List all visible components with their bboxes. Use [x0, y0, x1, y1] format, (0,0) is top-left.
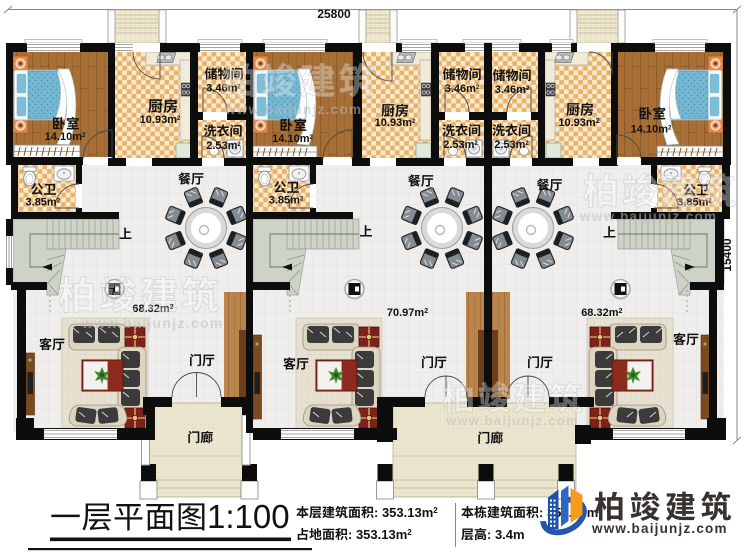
svg-text:70.97m2: 70.97m2	[387, 307, 428, 319]
svg-text:3.85m2: 3.85m2	[26, 197, 61, 209]
svg-text:www.baijunjz.com: www.baijunjz.com	[81, 315, 224, 331]
svg-text:3.46m2: 3.46m2	[445, 83, 480, 95]
svg-text:3.85m2: 3.85m2	[269, 195, 304, 207]
svg-text:1:100: 1:100	[207, 498, 290, 535]
svg-text:2.53m2: 2.53m2	[443, 139, 478, 151]
svg-text:14.10m2: 14.10m2	[631, 124, 672, 136]
svg-text:10.93m2: 10.93m2	[375, 117, 416, 129]
svg-text:3.46m2: 3.46m2	[495, 84, 530, 96]
svg-text:www.baijunjz.com: www.baijunjz.com	[591, 521, 728, 536]
svg-text:68.32m2: 68.32m2	[581, 307, 622, 319]
svg-text:25800: 25800	[317, 7, 351, 21]
svg-text:14.10m2: 14.10m2	[272, 133, 313, 145]
svg-text:www.baijunjz.com: www.baijunjz.com	[224, 102, 362, 117]
svg-text:www.baijunjz.com: www.baijunjz.com	[579, 209, 717, 224]
svg-text:www.baijunjz.com: www.baijunjz.com	[445, 413, 579, 428]
svg-text:: 353.13m2: : 353.13m2	[348, 527, 412, 542]
svg-text:14.10m2: 14.10m2	[45, 131, 86, 143]
svg-text:10.93m2: 10.93m2	[558, 117, 599, 129]
svg-text:10.93m2: 10.93m2	[140, 114, 181, 126]
svg-text:2.53m2: 2.53m2	[206, 140, 241, 152]
svg-text:: 3.4m: : 3.4m	[487, 527, 525, 542]
svg-text:: 353.13m2: : 353.13m2	[374, 505, 438, 520]
svg-text:2.53m2: 2.53m2	[494, 139, 529, 151]
